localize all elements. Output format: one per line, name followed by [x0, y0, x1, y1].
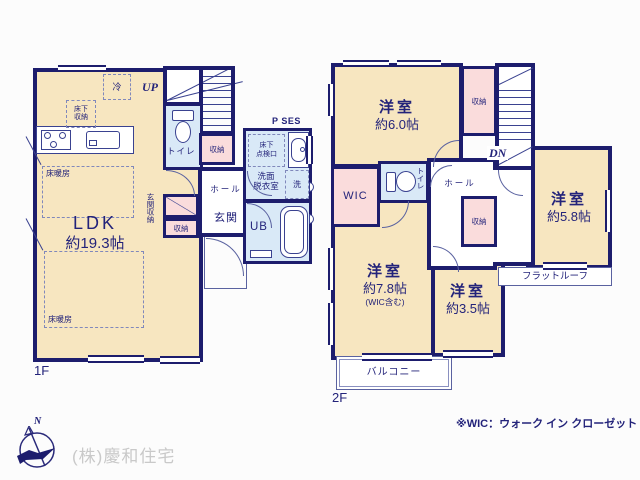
compass-graphic — [12, 426, 64, 474]
vent-bump-icon — [309, 214, 314, 224]
floor-heating-box-b: 床暖房 — [44, 251, 144, 328]
room6-name: 洋室 — [379, 99, 415, 117]
window — [343, 60, 389, 67]
toilet-2f-label: トイレ — [416, 167, 425, 201]
balcony-label: バルコニー — [367, 367, 422, 379]
floorplan-canvas: UP トイレ 収納 ホール 玄関 収納 玄関収納 床下 点検口 洗面 脱衣室 — [0, 0, 640, 480]
stairs-1f-flight — [199, 66, 235, 135]
toilet-bowl-icon — [396, 171, 416, 192]
compass-icon: N — [12, 416, 64, 474]
room78-name: 洋室 — [367, 263, 403, 281]
entrance-closet-shelf — [163, 194, 199, 218]
stairs-2f-treads — [499, 84, 531, 142]
window — [362, 353, 432, 361]
stairs-up-label: UP — [142, 80, 158, 94]
ldk-label-group: LDK 約19.3帖 — [40, 214, 150, 252]
underfloor-access-label: 床下 点検口 — [256, 142, 277, 159]
balcony-inner: バルコニー — [339, 359, 449, 387]
floor2-label: 2F — [332, 390, 347, 406]
window — [88, 355, 144, 363]
room78-note: (WIC含む) — [365, 297, 404, 307]
room35-area: 約3.5帖 — [446, 301, 490, 317]
room-58: 洋室 約5.8帖 — [526, 146, 612, 269]
balcony: バルコニー — [336, 356, 452, 390]
room-wic: WIC — [331, 166, 380, 227]
ldk-name: LDK — [73, 213, 117, 235]
closet-stairs-1f: 収納 — [199, 133, 235, 165]
burner-icon — [59, 132, 66, 139]
washer-label: 洗 — [293, 180, 301, 190]
toilet-tank-icon — [172, 110, 194, 121]
window — [605, 190, 612, 232]
pipe-space-label: P SES — [272, 116, 301, 127]
closet-label: 収納 — [210, 145, 225, 154]
closet-label: 収納 — [174, 224, 189, 233]
room58-name: 洋室 — [551, 191, 587, 209]
room6-area: 約6.0帖 — [375, 117, 419, 133]
entrance-closet2: 収納 — [163, 218, 199, 238]
wic-note: ※WIC：ウォーク イン クローゼット — [456, 418, 637, 431]
bathtub-inner-icon — [284, 210, 304, 254]
washer-box: 洗 — [285, 170, 309, 199]
bath-counter-icon — [250, 250, 272, 258]
room78-area: 約7.8帖 — [363, 281, 407, 297]
underfloor-storage-box: 床下 収納 — [66, 100, 96, 128]
floor-heating-box-a: 床暖房 — [42, 166, 134, 218]
washbasin-faucet-icon — [300, 147, 305, 152]
window — [160, 356, 200, 364]
window — [328, 303, 335, 345]
ldk-area: 約19.3帖 — [65, 235, 124, 253]
floor-heating-label: 床暖房 — [46, 169, 70, 179]
closet-mid-2f: 収納 — [461, 196, 497, 247]
closet-label: 収納 — [472, 97, 487, 106]
burner-icon — [50, 141, 57, 148]
toilet-tank-icon — [386, 172, 396, 192]
underfloor-storage-label: 床下 収納 — [74, 106, 88, 123]
window — [306, 136, 313, 164]
floor-heating-label: 床暖房 — [48, 315, 72, 325]
company-name: (株)慶和住宅 — [72, 447, 175, 467]
faucet-icon — [89, 140, 97, 146]
vent-bump-icon — [309, 182, 314, 192]
toilet-1f-label: トイレ — [167, 146, 196, 156]
window — [58, 65, 106, 72]
stairs-down-label: DN — [487, 146, 508, 160]
window — [543, 262, 587, 270]
closet-top-2f: 収納 — [461, 66, 497, 136]
underfloor-access-box: 床下 点検口 — [248, 134, 285, 167]
room35-name: 洋室 — [450, 283, 486, 301]
floor1-label: 1F — [34, 363, 49, 379]
room78-label-group: 洋室 約7.8帖 (WIC含む) — [340, 255, 430, 315]
closet-label: 収納 — [472, 217, 487, 226]
fridge-box: 冷 — [103, 74, 131, 100]
room58-area: 約5.8帖 — [547, 209, 591, 225]
toilet-bowl-icon — [175, 121, 191, 143]
window — [397, 60, 441, 67]
burner-icon — [44, 132, 51, 139]
window — [328, 248, 335, 290]
window — [328, 84, 335, 116]
entrance-label: 玄関 — [207, 212, 245, 225]
window — [443, 350, 493, 358]
wic-label: WIC — [343, 190, 367, 203]
fridge-label: 冷 — [112, 82, 121, 93]
flat-roof-label: フラットルーフ — [522, 271, 588, 282]
